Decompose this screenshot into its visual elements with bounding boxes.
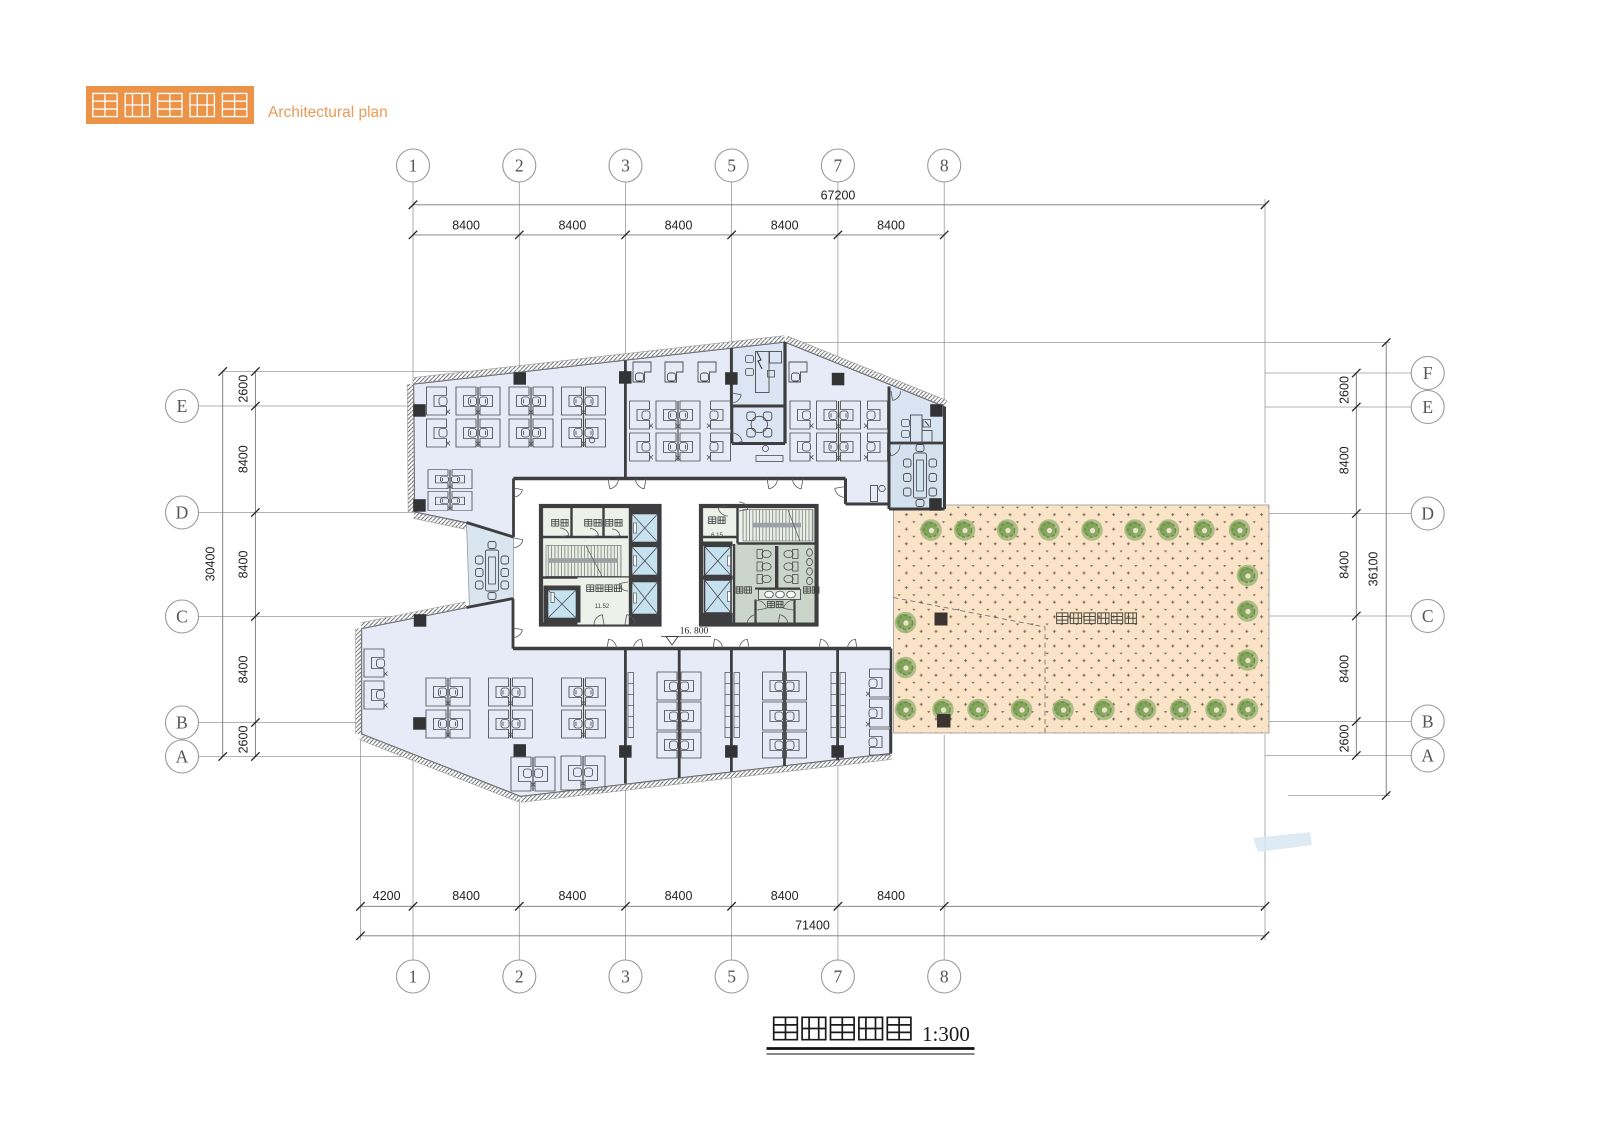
svg-text:D: D	[176, 503, 189, 523]
svg-text:8400: 8400	[1337, 551, 1351, 579]
svg-text:2600: 2600	[1337, 376, 1351, 404]
svg-text:B: B	[176, 713, 188, 733]
svg-text:5: 5	[727, 967, 736, 987]
svg-text:8400: 8400	[665, 889, 693, 903]
svg-text:36100: 36100	[1367, 552, 1381, 587]
svg-text:7: 7	[834, 967, 843, 987]
svg-text:8400: 8400	[558, 218, 586, 232]
svg-text:8400: 8400	[877, 889, 905, 903]
svg-text:A: A	[1421, 746, 1434, 766]
svg-text:8400: 8400	[237, 445, 251, 473]
svg-text:E: E	[1422, 397, 1433, 417]
svg-text:11.52: 11.52	[595, 604, 610, 610]
svg-text:1:300: 1:300	[922, 1022, 970, 1046]
svg-text:3: 3	[621, 967, 630, 987]
svg-text:8: 8	[940, 967, 949, 987]
svg-text:8400: 8400	[1337, 655, 1351, 683]
svg-text:5: 5	[727, 156, 736, 176]
svg-text:67200: 67200	[821, 189, 856, 203]
svg-text:2600: 2600	[1337, 725, 1351, 753]
svg-text:16. 800: 16. 800	[680, 627, 709, 637]
svg-text:B: B	[1422, 712, 1434, 732]
svg-text:8400: 8400	[452, 889, 480, 903]
svg-text:D: D	[1421, 504, 1434, 524]
svg-text:2600: 2600	[237, 375, 251, 403]
svg-text:8400: 8400	[1337, 446, 1351, 474]
svg-text:F: F	[1423, 363, 1433, 383]
svg-text:2600: 2600	[237, 726, 251, 754]
svg-text:1: 1	[409, 967, 418, 987]
svg-text:C: C	[1422, 606, 1434, 626]
svg-text:8400: 8400	[237, 656, 251, 684]
svg-text:8400: 8400	[237, 551, 251, 579]
svg-text:1: 1	[409, 156, 418, 176]
svg-text:8400: 8400	[452, 218, 480, 232]
svg-text:8400: 8400	[558, 889, 586, 903]
svg-text:2: 2	[515, 967, 524, 987]
svg-text:71400: 71400	[795, 919, 830, 933]
svg-text:6.15: 6.15	[711, 533, 723, 539]
svg-text:8400: 8400	[771, 218, 799, 232]
svg-text:30400: 30400	[204, 547, 218, 582]
svg-text:8: 8	[940, 156, 949, 176]
svg-text:C: C	[176, 607, 188, 627]
svg-text:2: 2	[515, 156, 524, 176]
svg-text:8400: 8400	[877, 218, 905, 232]
svg-text:A: A	[176, 747, 189, 767]
svg-text:E: E	[177, 396, 188, 416]
svg-text:8400: 8400	[665, 218, 693, 232]
svg-text:Architectural plan: Architectural plan	[268, 104, 388, 121]
svg-text:3: 3	[621, 156, 630, 176]
svg-text:8400: 8400	[771, 889, 799, 903]
svg-text:4200: 4200	[373, 889, 401, 903]
svg-text:7: 7	[834, 156, 843, 176]
